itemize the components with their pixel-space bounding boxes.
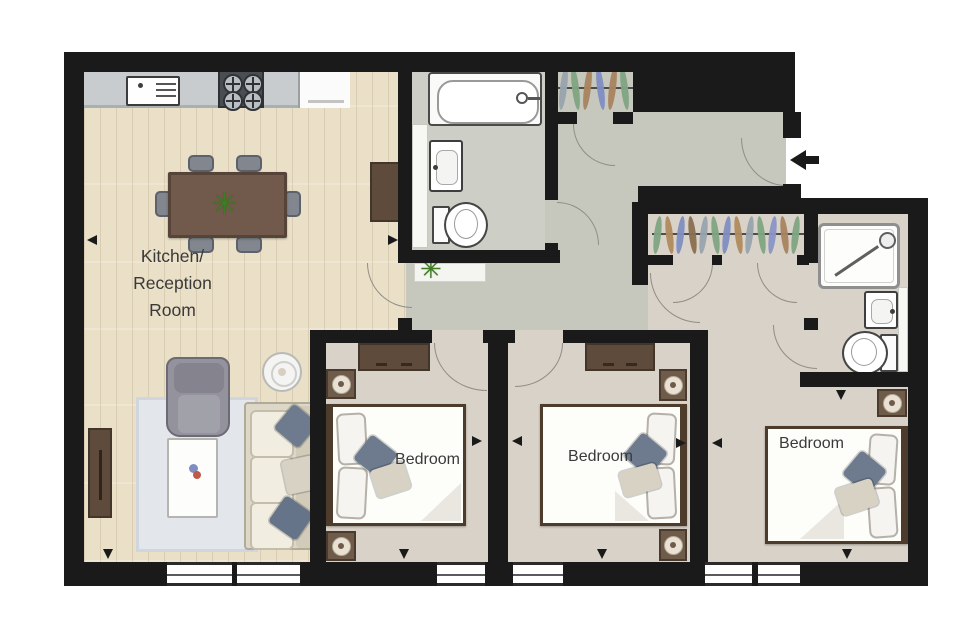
side-table xyxy=(262,352,302,392)
dining-chair xyxy=(236,155,262,172)
hanger-icon xyxy=(732,216,744,255)
dimension-marker xyxy=(388,235,398,245)
hanger-icon xyxy=(721,216,733,255)
tub-faucet xyxy=(516,92,528,104)
dimension-marker xyxy=(472,436,482,446)
wall xyxy=(800,372,928,387)
armchair-back xyxy=(174,363,224,393)
hanger-icon xyxy=(686,216,698,255)
wall xyxy=(908,214,928,586)
kitchen-sink-icon xyxy=(126,76,180,106)
wall xyxy=(690,330,708,562)
dimension-marker xyxy=(676,438,686,448)
wall xyxy=(632,202,648,285)
sink-drainer xyxy=(156,83,176,100)
wall xyxy=(563,330,708,343)
toilet-icon xyxy=(432,202,486,244)
dresser xyxy=(585,343,655,371)
armchair-seat xyxy=(178,395,220,433)
ensuite-sink-icon xyxy=(864,291,898,329)
hanger-icon xyxy=(663,216,675,255)
faucet-dot xyxy=(433,165,438,170)
wall xyxy=(64,52,652,72)
wall xyxy=(310,330,432,343)
wall xyxy=(712,255,722,265)
nightstand-lamp xyxy=(326,369,356,399)
window xyxy=(705,562,752,586)
plant-icon: ✳ xyxy=(212,190,237,220)
wall xyxy=(633,52,795,112)
shower-icon xyxy=(818,223,900,289)
window xyxy=(167,562,232,586)
wall xyxy=(648,255,673,265)
nightstand-lamp xyxy=(326,531,356,561)
duvet-fold xyxy=(800,499,844,539)
shower-head xyxy=(879,232,896,249)
wall xyxy=(783,112,801,138)
nightstand-lamp xyxy=(659,529,687,561)
entry-arrow-shaft xyxy=(805,156,819,164)
dining-chair xyxy=(188,155,214,172)
side-table-center xyxy=(278,368,286,376)
duvet-fold xyxy=(421,483,461,521)
window xyxy=(513,562,563,586)
wall xyxy=(488,330,508,562)
wall xyxy=(64,52,84,586)
room-label-bedroom: Bedroom xyxy=(380,451,475,469)
room-label-line: Room xyxy=(100,297,245,324)
nightstand-lamp xyxy=(659,369,687,401)
wall xyxy=(640,198,928,214)
wall xyxy=(398,250,560,263)
bed-pillow xyxy=(336,466,369,519)
dimension-marker xyxy=(512,436,522,446)
closet-hangers xyxy=(558,66,634,114)
tv-unit-handle xyxy=(99,450,102,500)
decor-flowers xyxy=(193,471,201,479)
bathtub-icon xyxy=(428,72,542,126)
hanger-icon xyxy=(755,216,767,255)
wall xyxy=(804,214,818,263)
burner-icon xyxy=(223,91,243,111)
fridge xyxy=(298,72,350,108)
armchair xyxy=(166,357,230,437)
wall xyxy=(613,112,633,124)
fridge-handle xyxy=(308,100,344,103)
dresser xyxy=(358,343,430,371)
window xyxy=(758,562,800,586)
closet-hangers xyxy=(652,216,804,256)
stove-hob-icon xyxy=(218,70,264,108)
wall xyxy=(557,112,577,124)
dimension-marker xyxy=(399,549,409,559)
floorplan: ✳ ✳ xyxy=(0,0,980,635)
wall xyxy=(804,318,818,330)
basin-inner xyxy=(436,150,458,185)
faucet-dot xyxy=(138,83,143,88)
dimension-marker xyxy=(87,235,97,245)
entry-arrow-icon xyxy=(790,150,806,170)
ensuite-vanity xyxy=(898,287,908,372)
faucet-dot xyxy=(890,309,895,314)
window xyxy=(237,562,300,586)
bath-vanity xyxy=(412,124,428,248)
toilet-seat xyxy=(454,209,478,239)
dimension-marker xyxy=(712,438,722,448)
window xyxy=(437,562,485,586)
room-label-bedroom: Bedroom xyxy=(764,435,859,453)
hanger-icon xyxy=(675,216,687,255)
dimension-marker xyxy=(597,549,607,559)
ensuite-toilet-icon xyxy=(838,331,898,371)
room-label-kitchen: Kitchen/ Reception Room xyxy=(100,243,245,324)
coffee-table xyxy=(167,438,218,518)
dimension-marker xyxy=(103,549,113,559)
dimension-marker xyxy=(836,390,846,400)
room-label-line: Reception xyxy=(100,270,245,297)
hanger-icon xyxy=(709,216,721,255)
room-label-bedroom: Bedroom xyxy=(553,448,648,466)
hanger-icon xyxy=(698,216,710,255)
wall xyxy=(398,72,412,252)
burner-icon xyxy=(243,91,263,111)
wall xyxy=(545,243,558,263)
hanger-icon xyxy=(767,216,779,255)
nightstand-lamp xyxy=(877,389,907,417)
tub-faucet-stub xyxy=(528,97,540,100)
hanger-icon xyxy=(744,216,756,255)
tv-unit xyxy=(88,428,112,518)
hanger-icon xyxy=(790,216,802,255)
dimension-marker xyxy=(842,549,852,559)
sideboard xyxy=(370,162,400,222)
hanger-icon xyxy=(652,216,664,255)
bath-sink-icon xyxy=(429,140,463,192)
toilet-seat xyxy=(851,338,877,366)
room-label-line: Kitchen/ xyxy=(100,243,245,270)
wall xyxy=(310,330,326,562)
wall xyxy=(545,66,558,200)
hanger-icon xyxy=(778,216,790,255)
